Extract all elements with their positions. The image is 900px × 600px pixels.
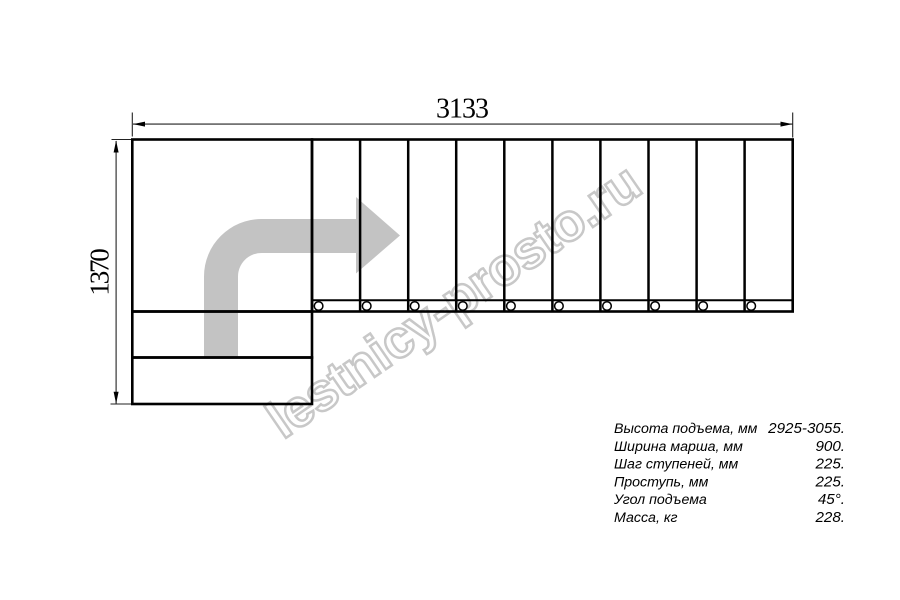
svg-text:Ширина марша, мм: Ширина марша, мм [614,439,743,455]
svg-text:228.: 228. [814,509,845,526]
svg-text:1370: 1370 [85,249,115,296]
svg-text:Шаг ступеней, мм: Шаг ступеней, мм [614,457,738,473]
svg-text:2925-3055.: 2925-3055. [767,420,845,437]
svg-text:Высота подъема, мм: Высота подъема, мм [614,421,758,437]
svg-text:900.: 900. [815,438,845,455]
svg-text:225.: 225. [814,473,845,490]
svg-text:45°.: 45°. [818,491,845,508]
svg-text:Угол подъема: Угол подъема [613,492,707,508]
svg-text:lestnicy-prosto.ru: lestnicy-prosto.ru [256,153,651,450]
svg-text:Проступь, мм: Проступь, мм [614,474,709,490]
svg-text:225.: 225. [814,456,845,473]
svg-text:Масса, кг: Масса, кг [614,510,678,526]
svg-text:3133: 3133 [436,94,488,125]
